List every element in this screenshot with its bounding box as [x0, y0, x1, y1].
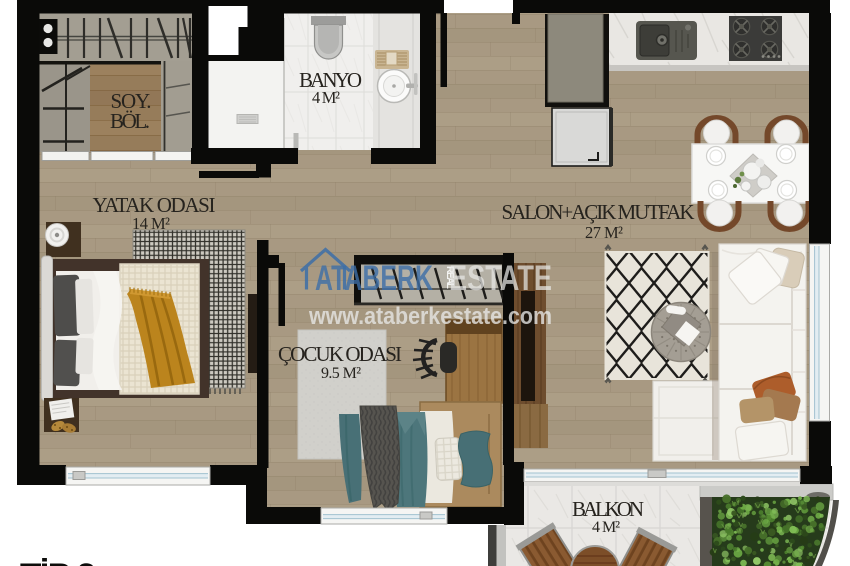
- svg-text:9.5 M²: 9.5 M²: [321, 365, 361, 382]
- svg-text:4 M²: 4 M²: [312, 88, 340, 107]
- svg-text:27 M²: 27 M²: [585, 223, 623, 242]
- svg-text:BÖL.: BÖL.: [110, 109, 150, 133]
- svg-text:ATABERK: ATABERK: [315, 259, 433, 298]
- svg-text:ESTATE: ESTATE: [449, 259, 552, 298]
- svg-text:SALON+AÇIK MUTFAK: SALON+AÇIK MUTFAK: [502, 200, 695, 224]
- svg-text:BALKON: BALKON: [572, 497, 644, 521]
- svg-text:www.ataberkestate.com: www.ataberkestate.com: [308, 303, 552, 330]
- svg-text:TİP 2: TİP 2: [20, 557, 96, 566]
- svg-text:ÇOCUK ODASI: ÇOCUK ODASI: [278, 342, 402, 366]
- svg-text:14 M²: 14 M²: [132, 214, 170, 233]
- svg-text:4 M²: 4 M²: [592, 519, 620, 536]
